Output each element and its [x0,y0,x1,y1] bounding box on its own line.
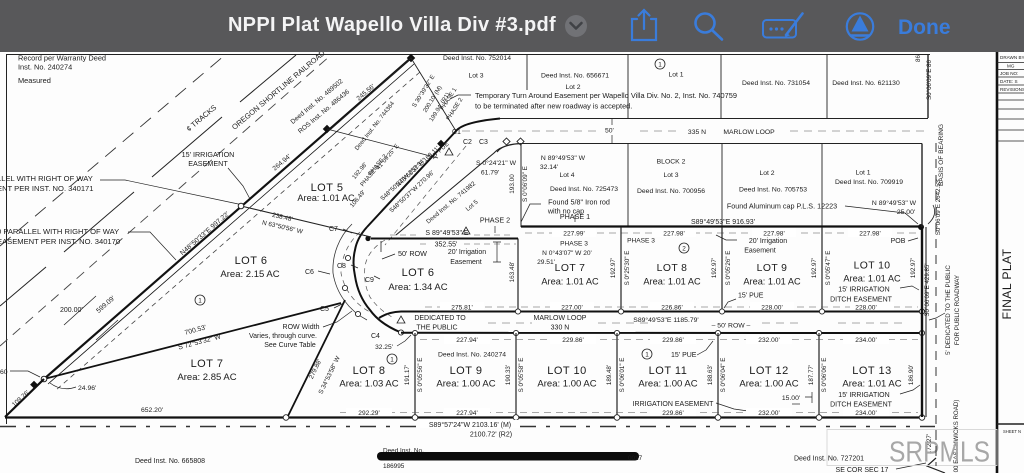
svg-text:Deed Inst. No. 727201: Deed Inst. No. 727201 [794,456,864,463]
svg-text:S 0°06'04" E: S 0°06'04" E [720,358,727,393]
svg-text:Area: 1.01 AC: Area: 1.01 AC [643,277,701,287]
svg-text:C4: C4 [371,333,380,340]
svg-text:LOT 9: LOT 9 [450,365,483,377]
svg-text:PHASE 3: PHASE 3 [627,238,655,245]
svg-text:50' ROW: 50' ROW [398,249,427,258]
svg-text:335 N: 335 N [688,129,706,136]
svg-text:Inst. No. 240274: Inst. No. 240274 [18,63,72,72]
svg-text:S 0°06'09" E: S 0°06'09" E [521,166,529,202]
svg-text:700.53': 700.53' [184,324,207,336]
svg-text:227.94': 227.94' [456,337,477,344]
svg-text:Area: 1.01 AC: Area: 1.01 AC [541,277,599,287]
svg-text:186995: 186995 [383,463,405,470]
svg-text:LOT 10: LOT 10 [547,365,587,377]
svg-text:S 0°05'56" E: S 0°05'56" E [417,358,424,393]
svg-text:SHEET N: SHEET N [1003,429,1021,434]
svg-text:EASEMENT: EASEMENT [188,159,228,168]
svg-text:50': 50' [605,128,614,135]
svg-text:188.63': 188.63' [707,365,714,385]
svg-text:SRPMLS: SRPMLS [889,437,990,469]
svg-text:Deed Inst. No. 744364: Deed Inst. No. 744364 [354,100,396,152]
svg-text:S 0°05'47" E: S 0°05'47" E [825,251,832,286]
svg-text:DRAWN BY: DRAWN BY [1000,55,1024,60]
svg-text:Area: 1.34 AC: Area: 1.34 AC [388,282,447,293]
svg-text:192.97': 192.97' [610,258,617,278]
svg-text:0017: 0017 [628,455,643,462]
svg-text:Lot 2: Lot 2 [565,84,580,91]
svg-text:Lot 5: Lot 5 [465,198,480,213]
svg-text:Easement: Easement [450,259,482,266]
svg-text:BLOCK 2: BLOCK 2 [657,159,686,166]
svg-text:61.79': 61.79' [481,170,499,177]
svg-text:S 0°06'06" E: S 0°06'06" E [821,358,828,393]
svg-text:234.00': 234.00' [855,337,876,344]
svg-text:Area: 1.00 AC: Area: 1.00 AC [739,379,798,390]
svg-text:JOB NO:: JOB NO: [1000,71,1018,76]
svg-text:190.33': 190.33' [505,365,512,385]
svg-text:109.76': 109.76' [11,389,31,408]
svg-text:LOT 10: LOT 10 [854,261,891,272]
svg-text:Lot 1: Lot 1 [855,170,870,177]
svg-text:LLEL WITH RIGHT OF WAY: LLEL WITH RIGHT OF WAY [0,174,93,183]
svg-text:N48°50'33"E 997.22': N48°50'33"E 997.22' [178,210,230,257]
svg-text:192.97': 192.97' [910,258,917,278]
svg-text:Lot 3: Lot 3 [663,172,678,179]
svg-text:S 72°53'32" W: S 72°53'32" W [177,332,222,351]
svg-text:229.86': 229.86' [562,337,583,344]
svg-text:29.51': 29.51' [537,259,555,266]
svg-text:Record per Warranty Deed: Record per Warranty Deed [18,54,106,63]
svg-text:0 PARALLEL WITH RIGHT OF WAY: 0 PARALLEL WITH RIGHT OF WAY [0,227,119,236]
svg-text:Area: 1.00 AC: Area: 1.00 AC [436,379,495,390]
svg-text:DATE: S: DATE: S [1000,79,1018,84]
svg-text:ENT PER INST. NO. 340171: ENT PER INST. NO. 340171 [0,184,94,193]
svg-text:15' PUE: 15' PUE [671,352,697,359]
svg-text:189.48': 189.48' [606,365,613,385]
svg-text:599.09': 599.09' [95,295,116,315]
svg-text:S 0°05'58" E: S 0°05'58" E [518,358,525,393]
svg-text:POB: POB [891,238,906,245]
svg-text:232.00': 232.00' [758,410,779,417]
svg-text:2: 2 [682,246,686,253]
svg-text:330 N: 330 N [551,325,570,332]
svg-text:S0°06'09"E 2642.53': S0°06'09"E 2642.53' [935,179,942,236]
svg-text:Deed Inst. No. 621130: Deed Inst. No. 621130 [832,80,900,87]
svg-text:652.20': 652.20' [141,407,163,414]
svg-text:LOT 6: LOT 6 [402,267,435,279]
svg-text:227.00': 227.00' [561,305,582,312]
svg-text:DITCH EASEMENT: DITCH EASEMENT [830,402,893,409]
svg-text:C9: C9 [365,277,374,284]
svg-text:32.25': 32.25' [375,344,393,351]
svg-text:227.98': 227.98' [859,231,880,238]
svg-text:Area: 1.00 AC: Area: 1.00 AC [537,379,596,390]
svg-text:163.48': 163.48' [509,262,516,283]
svg-text:LOT 7: LOT 7 [191,358,224,370]
svg-text:Found 5/8" Iron rod: Found 5/8" Iron rod [548,198,610,207]
svg-text:MG: MG [1007,64,1015,69]
svg-text:15' IRRIGATION: 15' IRRIGATION [838,392,889,399]
svg-text:S 0°05'26" E: S 0°05'26" E [725,251,732,286]
svg-text:S 0°25'30" E: S 0°25'30" E [624,251,631,286]
svg-text:LOT 7: LOT 7 [555,263,586,274]
svg-text:20' Irrigation: 20' Irrigation [749,238,787,245]
svg-text:229.86': 229.86' [662,410,683,417]
svg-text:187.77': 187.77' [808,365,815,385]
svg-text:S89°57'24"W 2103.16' (M): S89°57'24"W 2103.16' (M) [429,421,511,429]
svg-text:Area: 1.01 AC: Area: 1.01 AC [743,277,801,287]
svg-text:228.00': 228.00' [855,305,876,312]
svg-text:LOT 6: LOT 6 [235,255,268,267]
svg-text:20' Irrigation: 20' Irrigation [448,249,486,256]
svg-text:– 50' ROW –: – 50' ROW – [712,323,751,330]
svg-text:¢ TRACKS: ¢ TRACKS [185,103,219,133]
svg-text:2100.72' (R2): 2100.72' (R2) [470,432,512,439]
svg-text:Lot 2: Lot 2 [759,170,774,177]
svg-text:Deed Inst. No. 700956: Deed Inst. No. 700956 [637,188,705,195]
svg-text:292.29': 292.29' [358,410,379,417]
svg-text:SE COR SEC 17: SE COR SEC 17 [836,467,889,473]
svg-text:ROW Width: ROW Width [283,324,320,331]
svg-text:227.98': 227.98' [663,231,684,238]
svg-text:Deed Inst. No. 709919: Deed Inst. No. 709919 [835,179,903,186]
svg-text:LOT 11: LOT 11 [649,365,688,377]
svg-text:C6: C6 [305,269,314,276]
svg-text:60: 60 [0,369,8,376]
svg-text:200.00': 200.00' [60,307,83,314]
svg-text:IRRIGATION EASEMENT: IRRIGATION EASEMENT [633,401,714,408]
svg-text:Area: 1.03 AC: Area: 1.03 AC [339,379,398,390]
svg-text:352.55': 352.55' [435,242,458,249]
svg-text:232.00': 232.00' [758,337,779,344]
svg-text:1: 1 [390,357,394,364]
svg-text:Easement: Easement [744,248,776,255]
svg-text:191.17': 191.17' [404,365,411,385]
svg-text:N 89°49'53" W: N 89°49'53" W [541,154,586,162]
svg-text:Deed Inst. No. 240274: Deed Inst. No. 240274 [438,352,506,359]
svg-text:Lot 4: Lot 4 [559,172,574,179]
svg-text:228.00': 228.00' [761,305,782,312]
svg-text:Deed Inst. No. 731054: Deed Inst. No. 731054 [742,80,810,87]
svg-text:Area: 1.01 AC: Area: 1.01 AC [297,193,355,203]
svg-text:227.98': 227.98' [763,231,784,238]
svg-text:275.81': 275.81' [451,305,472,312]
svg-text:Area: 1.01 AC: Area: 1.01 AC [842,379,901,390]
svg-text:227.94': 227.94' [456,410,477,417]
svg-text:S0°06'09"E 86: S0°06'09"E 86 [926,59,933,99]
svg-text:Done: Done [898,16,951,39]
svg-text:1: 1 [658,62,662,69]
svg-text:Deed Inst. No. 656671: Deed Inst. No. 656671 [541,73,609,80]
svg-text:DEDICATED TO: DEDICATED TO [414,315,466,322]
svg-text:32.14': 32.14' [540,164,558,171]
svg-text:Measured: Measured [18,76,51,85]
svg-text:S0°06'09"E 429.85': S0°06'09"E 429.85' [924,263,931,316]
svg-text:15.00': 15.00' [782,395,800,402]
svg-text:C2: C2 [463,139,472,146]
svg-text:THE PUBLIC: THE PUBLIC [416,325,457,332]
svg-text:to be terminated after new roa: to be terminated after new roadway is ac… [475,102,632,111]
svg-text:Varies, through curve.: Varies, through curve. [249,333,317,340]
svg-text:41°09'25" E: 41°09'25" E [376,143,401,171]
svg-text:Lot 1: Lot 1 [668,72,683,79]
svg-text:15' IRRIGATION: 15' IRRIGATION [182,150,235,159]
svg-text:MARLOW LOOP: MARLOW LOOP [534,315,587,322]
svg-text:86: 86 [915,55,922,62]
svg-text:15' IRRIGATION: 15' IRRIGATION [838,287,889,294]
svg-text:192.97': 192.97' [811,258,818,278]
svg-text:Area: 2.85 AC: Area: 2.85 AC [177,372,236,383]
svg-text:C8: C8 [337,263,346,270]
svg-text:C3: C3 [479,139,488,146]
svg-text:PHASE 3: PHASE 3 [560,241,588,248]
svg-text:1: 1 [645,352,649,359]
svg-text:234.00': 234.00' [855,410,876,417]
svg-text:226.86': 226.86' [661,305,682,312]
svg-text:Area: 1.01 AC: Area: 1.01 AC [843,274,901,284]
svg-text:See Curve Table: See Curve Table [264,342,316,349]
svg-text:BASIS OF BEARING: BASIS OF BEARING [938,124,945,186]
svg-text:229.86': 229.86' [662,337,683,344]
svg-text:Temporary Turn Around Easement: Temporary Turn Around Easement per Wapel… [475,91,737,100]
svg-text:N 89°49'53" W: N 89°49'53" W [872,199,917,207]
svg-text:227.99': 227.99' [563,231,584,238]
svg-text:Area: 1.00 AC: Area: 1.00 AC [638,379,697,390]
svg-text:LOT 13: LOT 13 [852,365,892,377]
svg-text:Deed Inst. No. 705753: Deed Inst. No. 705753 [739,187,807,194]
svg-text:REVISIONS: REVISIONS [1000,87,1024,92]
svg-text:MARLOW LOOP: MARLOW LOOP [723,129,775,136]
svg-text:Deed Inst. No. 725473: Deed Inst. No. 725473 [550,186,618,193]
svg-text:N 0°43'07" W 20': N 0°43'07" W 20' [542,249,592,257]
svg-text:192.97': 192.97' [711,258,718,278]
svg-text:LOT 9: LOT 9 [757,263,788,274]
svg-text:193.00: 193.00 [509,174,516,194]
svg-text:Deed Inst. No. 665808: Deed Inst. No. 665808 [135,458,205,465]
svg-text:FINAL PLAT: FINAL PLAT [1000,248,1014,319]
svg-text:15' PUE: 15' PUE [738,293,764,300]
svg-text:LOT 8: LOT 8 [657,263,688,274]
svg-text:186.90': 186.90' [908,365,915,385]
svg-text:EASEMENT PER INST. NO. 340170: EASEMENT PER INST. NO. 340170 [0,237,120,246]
svg-text:S 0°06'01" E: S 0°06'01" E [619,358,626,393]
svg-text:1: 1 [198,298,202,305]
svg-text:Area: 2.15 AC: Area: 2.15 AC [220,269,279,280]
svg-text:LOT 8: LOT 8 [353,365,386,377]
svg-text:Found Aluminum cap P.L.S. 1222: Found Aluminum cap P.L.S. 12223 [727,202,837,211]
svg-text:25.00': 25.00' [897,209,915,216]
svg-text:PHASE 2: PHASE 2 [480,216,510,225]
svg-text:FOR PUBLIC ROADWAY: FOR PUBLIC ROADWAY [954,275,961,345]
svg-text:S89°49'53"E 916.93': S89°49'53"E 916.93' [691,218,755,226]
svg-text:5' DEDICATED TO THE PUBLIC: 5' DEDICATED TO THE PUBLIC [945,265,952,355]
svg-text:LOT 12: LOT 12 [749,365,789,377]
svg-text:24.96': 24.96' [78,385,96,392]
svg-text:Lot 3: Lot 3 [468,73,483,80]
svg-text:Deed Inst. No. 752014: Deed Inst. No. 752014 [443,55,511,62]
